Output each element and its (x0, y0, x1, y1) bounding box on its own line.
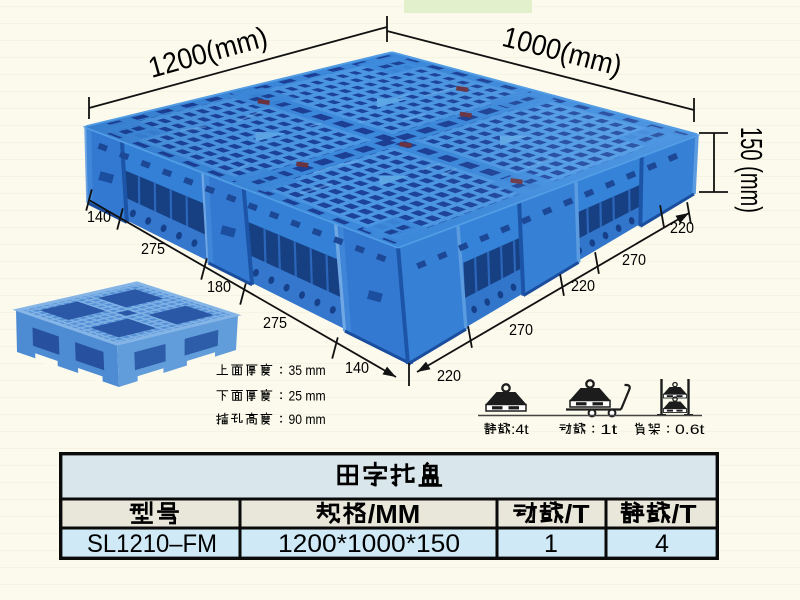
svg-text:150 (mm): 150 (mm) (734, 127, 769, 213)
svg-text:SL1210–FM: SL1210–FM (87, 530, 217, 558)
svg-text:/T: /T (565, 499, 590, 529)
svg-text:140: 140 (87, 209, 111, 226)
svg-text:220: 220 (437, 368, 461, 385)
svg-text:1200*1000*150: 1200*1000*150 (278, 530, 460, 558)
svg-text:180: 180 (207, 279, 231, 296)
svg-text:0.6t: 0.6t (675, 422, 705, 437)
svg-text:/T: /T (672, 499, 697, 529)
svg-text:1: 1 (544, 530, 558, 558)
svg-text:4: 4 (655, 530, 669, 558)
svg-text:275: 275 (141, 241, 165, 258)
svg-text:90 mm: 90 mm (288, 412, 325, 427)
svg-text:/MM: /MM (368, 499, 421, 529)
svg-text:275: 275 (263, 315, 287, 332)
svg-text:220: 220 (571, 278, 595, 295)
svg-text:1t: 1t (600, 422, 617, 437)
svg-text:25 mm: 25 mm (288, 388, 325, 403)
svg-text:270: 270 (622, 252, 646, 269)
svg-text::4t: :4t (511, 422, 529, 437)
svg-text:140: 140 (345, 360, 369, 377)
svg-text:220: 220 (670, 220, 694, 237)
svg-text:35 mm: 35 mm (288, 363, 325, 378)
svg-text:270: 270 (509, 322, 533, 339)
